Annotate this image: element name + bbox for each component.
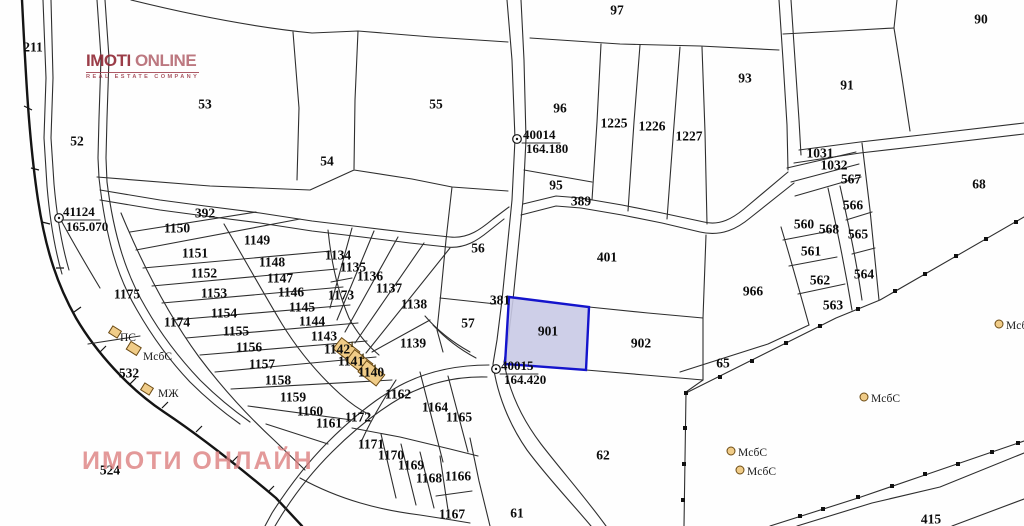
road-label-381: 381 (490, 293, 511, 308)
parcel-label-1172: 1172 (345, 410, 372, 425)
parcel-label-1226: 1226 (639, 119, 666, 134)
logo-word-online: ONLINE (135, 51, 196, 70)
parcel-label-1149: 1149 (244, 233, 271, 248)
parcel-label-1166: 1166 (445, 469, 472, 484)
parcel-label-1168: 1168 (416, 471, 443, 486)
road-label-389: 389 (571, 194, 592, 209)
parcel-label-1150: 1150 (164, 221, 191, 236)
survey-point-dot (516, 138, 518, 140)
parcel-label-567: 567 (841, 172, 862, 187)
parcel-label-1157: 1157 (249, 357, 276, 372)
survey-id-41124: 41124 (63, 204, 95, 219)
parcel-label-563: 563 (823, 298, 844, 313)
survey-boundary-markers (681, 220, 1020, 518)
parcel-label-568: 568 (819, 222, 840, 237)
parcel-label-211: 211 (23, 40, 43, 55)
parcel-label-1159: 1159 (280, 390, 307, 405)
parcel-label-1032: 1032 (821, 158, 848, 173)
survey-elevation-40014: 164.180 (526, 141, 568, 156)
parcel-label-91: 91 (840, 78, 854, 93)
building-label-6: МсбС (747, 466, 776, 478)
parcel-label-562: 562 (810, 273, 831, 288)
building-label-4: МсбС (1006, 320, 1024, 332)
parcel-label-566: 566 (843, 198, 864, 213)
building-icon (860, 393, 868, 401)
parcel-label-57: 57 (461, 316, 475, 331)
parcel-label-1137: 1137 (376, 281, 403, 296)
parcel-label-1174: 1174 (164, 315, 191, 330)
survey-point-dot (495, 368, 497, 370)
building-label-5: МсбС (738, 447, 767, 459)
parcel-label-561: 561 (801, 244, 822, 259)
logo-word-imoti: IMOTI (86, 51, 131, 70)
parcel-label-95: 95 (549, 178, 563, 193)
parcel-label-90: 90 (974, 12, 988, 27)
parcel-label-1154: 1154 (211, 306, 238, 321)
road-label-415: 415 (921, 512, 942, 526)
parcel-label-966: 966 (743, 284, 764, 299)
parcel-label-1156: 1156 (236, 340, 263, 355)
parcel-label-56: 56 (471, 241, 485, 256)
survey-elevation-41124: 165.070 (66, 219, 108, 234)
parcel-label-1151: 1151 (182, 246, 209, 261)
parcel-label-1175: 1175 (114, 287, 141, 302)
parcel-label-97: 97 (610, 3, 624, 18)
parcel-label-1147: 1147 (267, 271, 294, 286)
parcel-label-1138: 1138 (401, 297, 428, 312)
parcel-label-1140: 1140 (358, 365, 385, 380)
building-label-2: МЖ (158, 388, 179, 400)
parcel-label-532: 532 (119, 366, 140, 381)
parcel-label-564: 564 (854, 267, 875, 282)
building-floors-label: 1 (350, 340, 354, 349)
watermark-text: ИМОТИ ОНЛАЙН (82, 447, 314, 476)
parcel-label-1148: 1148 (259, 255, 286, 270)
building-floors-label: 1 (361, 352, 365, 361)
parcel-label-1146: 1146 (278, 285, 305, 300)
building-label-3: МсбС (871, 393, 900, 405)
building-label-0: ПС (120, 332, 136, 344)
building-icon (995, 320, 1003, 328)
parcel-label-1164: 1164 (422, 400, 449, 415)
building-label-1: МсбС (143, 351, 172, 363)
parcel-label-62: 62 (596, 448, 610, 463)
parcel-label-901: 901 (538, 324, 559, 339)
parcel-label-1225: 1225 (601, 116, 628, 131)
parcel-label-1153: 1153 (201, 286, 228, 301)
parcel-label-1155: 1155 (223, 324, 250, 339)
parcel-label-1227: 1227 (676, 129, 703, 144)
parcel-label-55: 55 (429, 97, 443, 112)
road-label-392: 392 (195, 206, 216, 221)
parcel-label-565: 565 (848, 227, 869, 242)
parcel-label-93: 93 (738, 71, 752, 86)
parcel-label-54: 54 (320, 154, 334, 169)
parcel-label-61: 61 (510, 506, 524, 521)
parcel-label-65: 65 (716, 356, 730, 371)
parcel-label-1139: 1139 (400, 336, 427, 351)
parcel-label-68: 68 (972, 177, 986, 192)
parcel-label-1162: 1162 (385, 387, 412, 402)
parcel-label-1167: 1167 (439, 507, 466, 522)
cadastral-map-screenshot: 2115253545597961225122612279391906895565… (0, 0, 1024, 526)
parcel-label-1144: 1144 (299, 314, 326, 329)
imoti-online-logo: IMOTI ONLINE REAL ESTATE COMPANY (86, 52, 199, 81)
parcel-label-1161: 1161 (316, 416, 343, 431)
parcel-label-1173: 1173 (328, 288, 355, 303)
parcel-label-1152: 1152 (191, 266, 218, 281)
parcel-label-52: 52 (70, 134, 84, 149)
parcel-label-96: 96 (553, 101, 567, 116)
parcel-label-53: 53 (198, 97, 212, 112)
parcel-label-1145: 1145 (289, 300, 316, 315)
parcel-label-401: 401 (597, 250, 618, 265)
survey-id-40015: 40015 (501, 358, 534, 373)
building-icon (727, 447, 735, 455)
parcel-label-902: 902 (631, 336, 652, 351)
survey-point-dot (58, 217, 60, 219)
building-icon (736, 466, 744, 474)
survey-id-40014: 40014 (523, 127, 556, 142)
parcel-label-560: 560 (794, 217, 815, 232)
survey-elevation-40015: 164.420 (504, 372, 546, 387)
building-floors-label: 1 (373, 363, 377, 372)
logo-tagline: REAL ESTATE COMPANY (86, 72, 199, 81)
parcel-label-1165: 1165 (446, 410, 473, 425)
parcel-label-1158: 1158 (265, 373, 292, 388)
